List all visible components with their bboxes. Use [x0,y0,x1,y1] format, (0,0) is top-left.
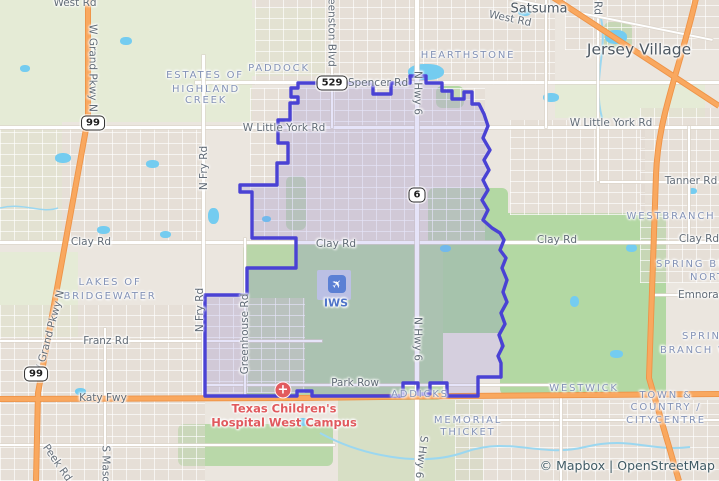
map-attribution[interactable]: © Mapbox | OpenStreetMap [540,458,715,473]
shield-6: 6 [409,188,426,203]
shields-layer: 99995296 [0,0,719,481]
shield-99-south: 99 [24,367,48,382]
shield-529: 529 [317,76,348,91]
shield-99-north: 99 [81,116,105,131]
map-canvas[interactable]: ✈ + West RdWest RdSatsumaRdJersey Villag… [0,0,719,481]
